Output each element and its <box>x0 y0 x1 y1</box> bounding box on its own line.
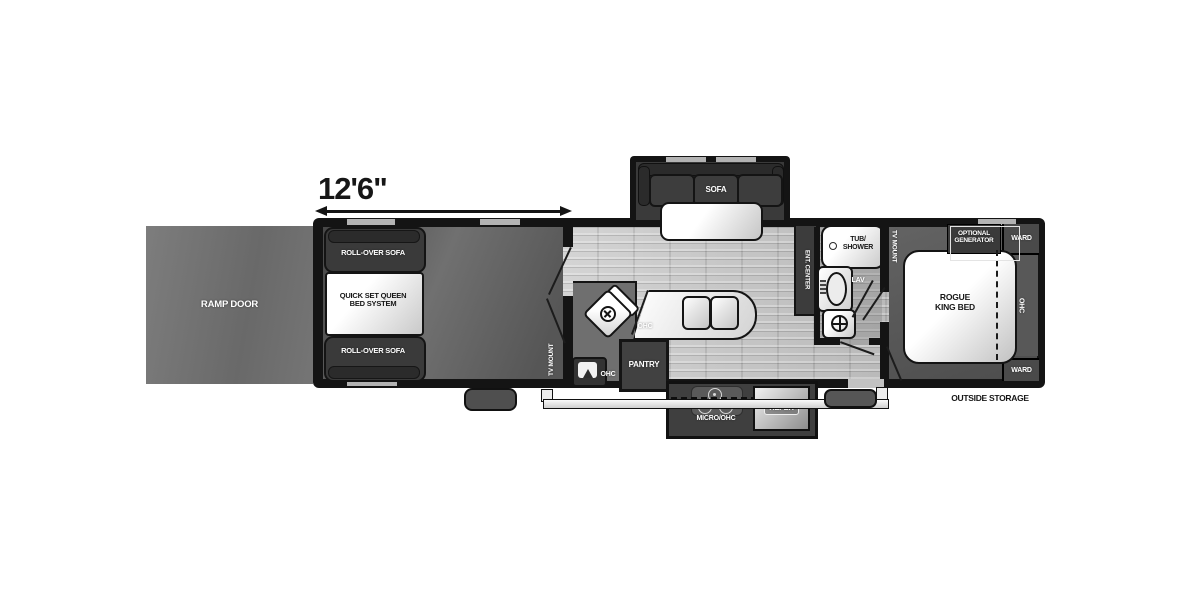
dimension-label: 12'6" <box>318 172 438 207</box>
generator-compartment-outline <box>950 226 1020 261</box>
rollover-sofa-bottom-backrest <box>328 366 420 379</box>
dimension-arrowhead-right <box>560 206 572 216</box>
entry-step <box>824 389 877 408</box>
bedroom-ohc-label: OHC <box>1017 298 1025 313</box>
garage-step <box>464 388 517 411</box>
queen-bed-label-line2: BED SYSTEM <box>327 300 419 308</box>
lav-faucet <box>820 280 826 294</box>
ramp-door: RAMP DOOR <box>146 226 313 384</box>
rollover-sofa-top: ROLL-OVER SOFA <box>324 227 426 273</box>
dimension-arrowhead-left <box>315 206 327 216</box>
pantry-label: PANTRY <box>629 361 660 370</box>
rollover-sofa-bottom-label: ROLL-OVER SOFA <box>326 347 420 355</box>
pantry: PANTRY <box>619 339 669 392</box>
floorplan-canvas: 12'6" RAMP DOOR ROLL-OVER SOFA QUICK SET… <box>0 0 1200 600</box>
tv-icon <box>578 362 597 378</box>
toilet <box>822 309 856 339</box>
rollover-sofa-top-backrest <box>328 230 420 243</box>
window-garage-top <box>347 219 395 225</box>
prep-sink-icon <box>600 306 616 322</box>
king-bed: ROGUE KING BED <box>903 250 1017 364</box>
king-bed-label-line2: KING BED <box>915 303 995 313</box>
kitchen-sink-left <box>682 296 711 330</box>
queen-bed-label: QUICK SET QUEEN BED SYSTEM <box>327 292 419 309</box>
toilet-flush-icon <box>831 315 848 332</box>
lavatory <box>817 266 853 312</box>
garage-tv-mount-label: TV MOUNT <box>548 336 555 384</box>
tub-shower-label: TUB/ SHOWER <box>835 236 881 252</box>
sofa-table <box>660 202 763 241</box>
bedroom-left-wall-stub <box>880 322 889 345</box>
lav-label: LAV <box>848 277 868 285</box>
bed-slide-dashed-line <box>996 250 998 360</box>
king-bed-label: ROGUE KING BED <box>915 293 995 312</box>
tub-shower: TUB/ SHOWER <box>821 225 885 269</box>
ward-bottom-label: WARD <box>1011 367 1032 375</box>
bedroom-tv-mount-label: TV MOUNT <box>890 224 897 268</box>
kitchen-slideout: MICRO/OHC REFER <box>666 381 818 439</box>
ramp-door-label: RAMP DOOR <box>201 300 258 311</box>
micro-ohc-label: MICRO/OHC <box>673 415 759 423</box>
sofa-label: SOFA <box>706 186 727 195</box>
sofa-slideout-window-2 <box>716 157 756 162</box>
outside-storage-label: OUTSIDE STORAGE <box>938 394 1042 404</box>
bathroom-bottom-wall-left <box>814 338 840 345</box>
rollover-sofa-bottom: ROLL-OVER SOFA <box>324 336 426 382</box>
queen-bed-system: QUICK SET QUEEN BED SYSTEM <box>325 272 424 336</box>
garage-ohc-label: OHC <box>597 371 619 379</box>
dimension-arrow-line <box>323 210 564 213</box>
window-garage-top2 <box>480 219 520 225</box>
bedroom-left-wall-top <box>880 227 889 292</box>
tub-label-line2: SHOWER <box>835 244 881 252</box>
rollover-sofa-top-label: ROLL-OVER SOFA <box>326 249 420 257</box>
kitchen-ohc-label: OHC <box>633 323 657 331</box>
kitchen-sink-right <box>710 296 739 330</box>
sofa-slideout-window-1 <box>666 157 706 162</box>
dimension-arrow <box>315 205 572 217</box>
tv-icon-stand <box>583 369 593 378</box>
lav-basin <box>826 272 847 306</box>
garage-kitchen-wall-top <box>563 227 573 247</box>
tub-label-line1: TUB/ <box>835 236 881 244</box>
ent-center-label: ENT. CENTER <box>803 250 810 289</box>
